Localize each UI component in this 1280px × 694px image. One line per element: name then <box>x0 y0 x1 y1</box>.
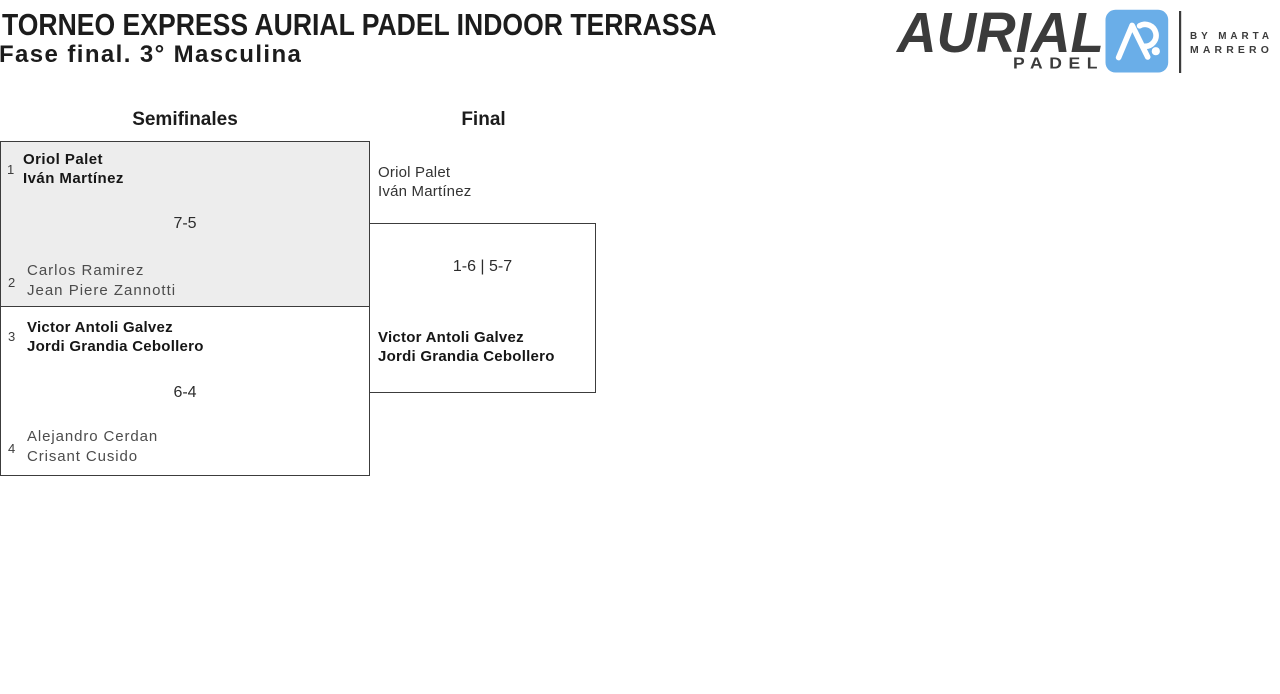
svg-text:PADEL: PADEL <box>1013 56 1104 73</box>
svg-text:BY MARTA: BY MARTA <box>1190 31 1273 42</box>
svg-text:MARRERO: MARRERO <box>1190 45 1273 56</box>
